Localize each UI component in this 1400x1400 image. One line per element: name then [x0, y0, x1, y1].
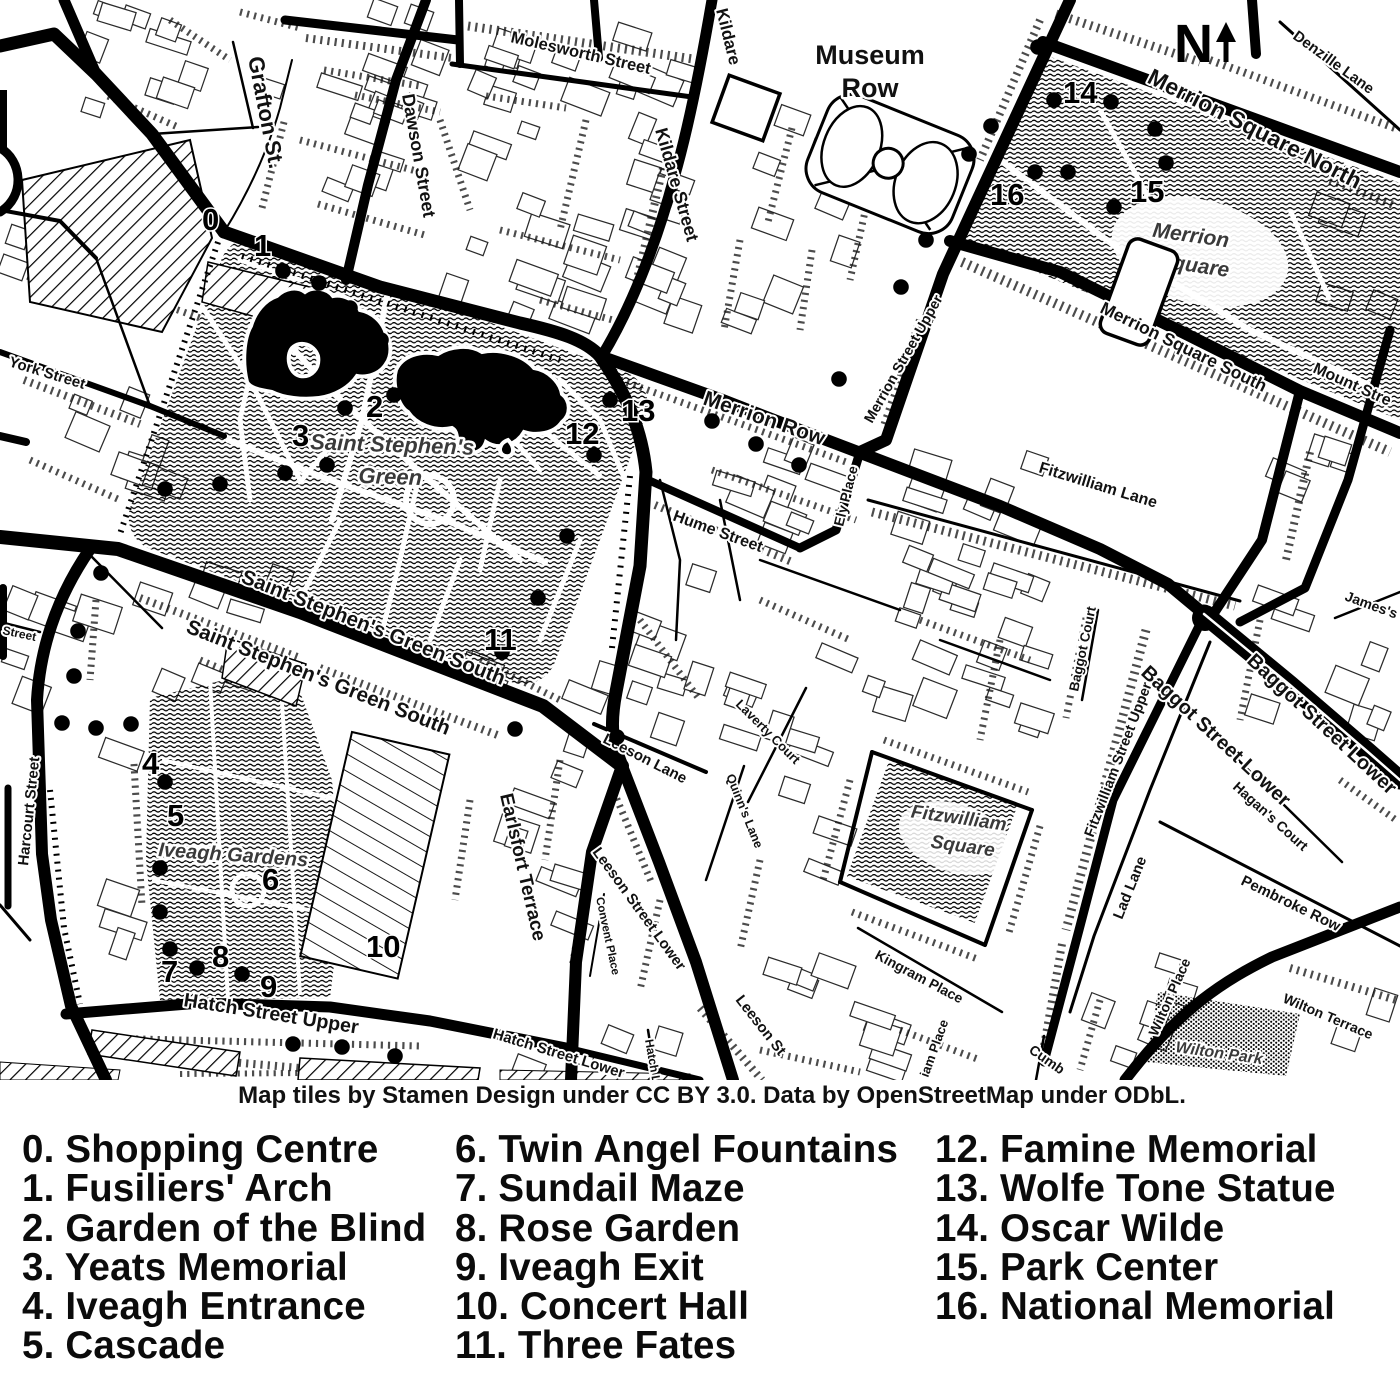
svg-text:1: 1 [254, 228, 271, 263]
svg-text:10. Concert Hall: 10. Concert Hall [455, 1285, 749, 1328]
svg-text:2. Garden of the Blind: 2. Garden of the Blind [22, 1207, 426, 1250]
svg-text:Green: Green [358, 463, 422, 490]
svg-text:6. Twin Angel Fountains: 6. Twin Angel Fountains [455, 1128, 898, 1171]
svg-text:13: 13 [621, 393, 655, 428]
svg-text:16. National Memorial: 16. National Memorial [935, 1285, 1335, 1328]
svg-text:9. Iveagh Exit: 9. Iveagh Exit [455, 1246, 704, 1289]
svg-text:11: 11 [484, 622, 517, 657]
svg-text:Row: Row [842, 73, 900, 103]
svg-text:6: 6 [262, 862, 279, 897]
svg-text:16: 16 [990, 177, 1024, 212]
svg-text:N: N [1174, 14, 1213, 74]
svg-text:12. Famine Memorial: 12. Famine Memorial [935, 1128, 1318, 1171]
svg-text:0: 0 [202, 202, 219, 237]
svg-text:14. Oscar Wilde: 14. Oscar Wilde [935, 1207, 1224, 1250]
svg-text:2: 2 [366, 389, 383, 424]
svg-text:15: 15 [1130, 174, 1164, 209]
svg-text:3. Yeats Memorial: 3. Yeats Memorial [22, 1246, 348, 1289]
svg-text:0. Shopping Centre: 0. Shopping Centre [22, 1128, 379, 1171]
svg-text:7. Sundail Maze: 7. Sundail Maze [455, 1167, 745, 1210]
svg-text:5: 5 [167, 798, 184, 833]
svg-text:14: 14 [1063, 75, 1098, 110]
svg-text:Museum: Museum [815, 40, 925, 70]
svg-text:7: 7 [161, 954, 178, 989]
svg-text:15. Park Center: 15. Park Center [935, 1246, 1218, 1289]
svg-text:4: 4 [142, 746, 160, 781]
svg-text:10: 10 [366, 929, 400, 964]
svg-text:12: 12 [565, 416, 599, 451]
svg-text:8. Rose Garden: 8. Rose Garden [455, 1207, 740, 1250]
svg-text:8: 8 [212, 939, 229, 974]
svg-text:5. Cascade: 5. Cascade [22, 1324, 225, 1367]
svg-text:9: 9 [260, 969, 277, 1004]
svg-text:1. Fusiliers' Arch: 1. Fusiliers' Arch [22, 1167, 333, 1210]
svg-text:3: 3 [292, 418, 309, 453]
svg-text:11. Three Fates: 11. Three Fates [455, 1324, 736, 1367]
svg-text:4. Iveagh Entrance: 4. Iveagh Entrance [22, 1285, 366, 1328]
svg-text:Map tiles by Stamen Design und: Map tiles by Stamen Design under CC BY 3… [238, 1082, 1186, 1109]
svg-text:13. Wolfe Tone Statue: 13. Wolfe Tone Statue [935, 1167, 1336, 1210]
